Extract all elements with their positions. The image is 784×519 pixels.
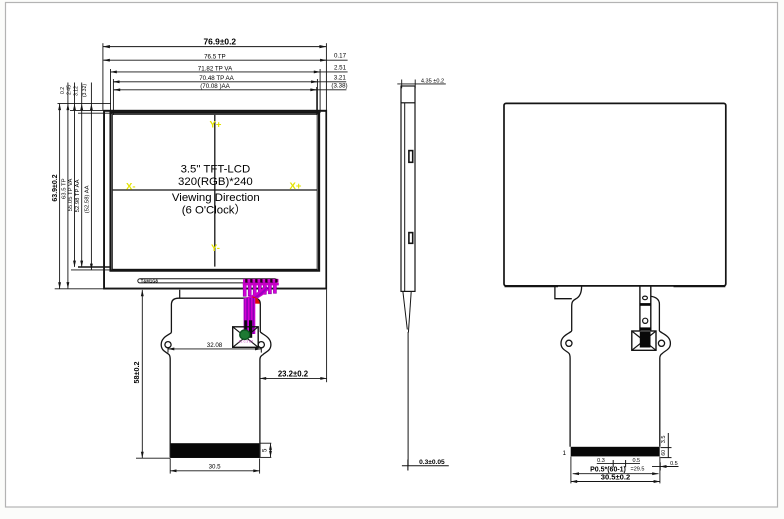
svg-text:2.45: 2.45 (67, 85, 73, 95)
svg-text:1: 1 (563, 450, 567, 457)
svg-text:58±0.2: 58±0.2 (132, 362, 141, 384)
svg-text:3.5" TFT-LCD: 3.5" TFT-LCD (181, 163, 251, 175)
svg-text:(6 O'Clock）: (6 O'Clock） (182, 204, 246, 217)
svg-text:A1 0.3 B3: A1 0.3 B3 (239, 340, 254, 344)
svg-text:4.35 ±0.2: 4.35 ±0.2 (421, 78, 444, 84)
svg-text:X-: X- (126, 182, 136, 193)
svg-text:55.05 TP VA: 55.05 TP VA (68, 178, 74, 211)
svg-text:63.5 TP: 63.5 TP (61, 178, 67, 199)
svg-text:2.51: 2.51 (334, 64, 347, 71)
svg-text:Y-: Y- (211, 243, 220, 254)
svg-text:(52.58) AA: (52.58) AA (84, 185, 90, 213)
svg-text:71.82 TP VA: 71.82 TP VA (198, 65, 233, 72)
svg-text:=29.5: =29.5 (631, 467, 645, 473)
svg-text:52.98 TP AA: 52.98 TP AA (75, 179, 81, 212)
svg-text:(3.32): (3.32) (82, 84, 88, 97)
svg-text:70.48 TP AA: 70.48 TP AA (199, 75, 234, 82)
svg-text:63.9±0.2: 63.9±0.2 (52, 174, 59, 201)
svg-text:0.2: 0.2 (60, 87, 66, 94)
svg-text:3.21: 3.21 (334, 74, 347, 81)
svg-text:Viewing Direction: Viewing Direction (172, 192, 260, 204)
svg-text:60: 60 (661, 450, 667, 456)
svg-text:76.9±0.2: 76.9±0.2 (204, 37, 237, 47)
svg-text:(70.08 )AA: (70.08 )AA (200, 83, 230, 90)
svg-text:30.5±0.2: 30.5±0.2 (601, 472, 631, 481)
svg-text:0.17: 0.17 (334, 53, 347, 60)
svg-text:T&M1G8: T&M1G8 (141, 278, 159, 283)
svg-text:0.5: 0.5 (632, 458, 640, 464)
svg-text:3.5: 3.5 (661, 436, 667, 444)
svg-text:30.5: 30.5 (209, 463, 222, 470)
svg-text:76.5 TP: 76.5 TP (204, 54, 226, 61)
svg-text:Y+: Y+ (210, 119, 222, 130)
svg-text:0.3±0.05: 0.3±0.05 (419, 459, 445, 466)
svg-text:0.5: 0.5 (670, 461, 678, 467)
svg-text:0.3: 0.3 (597, 458, 605, 464)
svg-text:320(RGB)*240: 320(RGB)*240 (178, 176, 253, 188)
svg-text:(3.38): (3.38) (331, 83, 347, 90)
svg-text:32.08: 32.08 (207, 342, 223, 349)
svg-text:23.2±0.2: 23.2±0.2 (278, 369, 309, 378)
svg-text:X+: X+ (290, 181, 302, 192)
svg-text:3.12: 3.12 (74, 86, 80, 96)
